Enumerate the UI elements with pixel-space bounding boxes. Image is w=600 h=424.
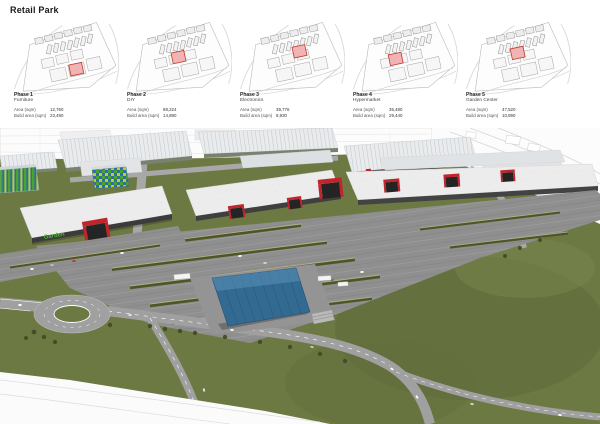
phase-highlight-parcel [171, 50, 186, 63]
build-label: Build area (sqm) [127, 113, 163, 119]
build-label: Build area (sqm) [240, 113, 276, 119]
phase-highlight-parcel [510, 46, 525, 59]
page-title: Retail Park [10, 5, 59, 15]
phase-caption: Phase 4 Hypermarket Area (sqm) 35,480 Bu… [353, 92, 402, 118]
field-shade [285, 338, 475, 424]
phase-category: Furniture [14, 98, 63, 104]
phase-caption: Phase 3 Electronics Area (sqm) 39,776 Bu… [240, 92, 289, 118]
phase-caption: Phase 1 Furniture Area (sqm) 12,760 Buil… [14, 92, 63, 118]
build-value: 8,930 [276, 113, 287, 119]
phase-strip: Phase 1 Furniture Area (sqm) 12,760 Buil… [6, 20, 571, 124]
aerial-render: Garden [0, 128, 600, 424]
phase-category: DIY [127, 98, 176, 104]
phase-caption: Phase 2 DIY Area (sqm) 88,224 Build area… [127, 92, 176, 118]
phase-category: Garden Center [466, 98, 515, 104]
phase-highlight-parcel [388, 52, 403, 65]
phase-highlight-parcel [69, 62, 84, 75]
phase-highlight-parcel [292, 45, 307, 58]
presentation-board: Retail Park [0, 0, 600, 424]
build-label: Build area (sqm) [466, 113, 502, 119]
roundabout [34, 295, 110, 333]
phase-panel: Phase 1 Furniture Area (sqm) 12,760 Buil… [6, 20, 119, 124]
phase-category: Electronics [240, 98, 289, 104]
phase-panel: Phase 2 DIY Area (sqm) 88,224 Build area… [119, 20, 232, 124]
build-value: 14,890 [163, 113, 176, 119]
build-label: Build area (sqm) [353, 113, 389, 119]
phase-panel: Phase 3 Electronics Area (sqm) 39,776 Bu… [232, 20, 345, 124]
phase-panel: Phase 5 Garden Center Area (sqm) 47,520 … [458, 20, 571, 124]
build-value: 29,440 [389, 113, 402, 119]
striped-building [0, 164, 39, 193]
build-label: Build area (sqm) [14, 113, 50, 119]
phase-category: Hypermarket [353, 98, 402, 104]
phase-caption: Phase 5 Garden Center Area (sqm) 47,520 … [466, 92, 515, 118]
build-value: 23,490 [50, 113, 63, 119]
build-value: 10,890 [502, 113, 515, 119]
phase-panel: Phase 4 Hypermarket Area (sqm) 35,480 Bu… [345, 20, 458, 124]
